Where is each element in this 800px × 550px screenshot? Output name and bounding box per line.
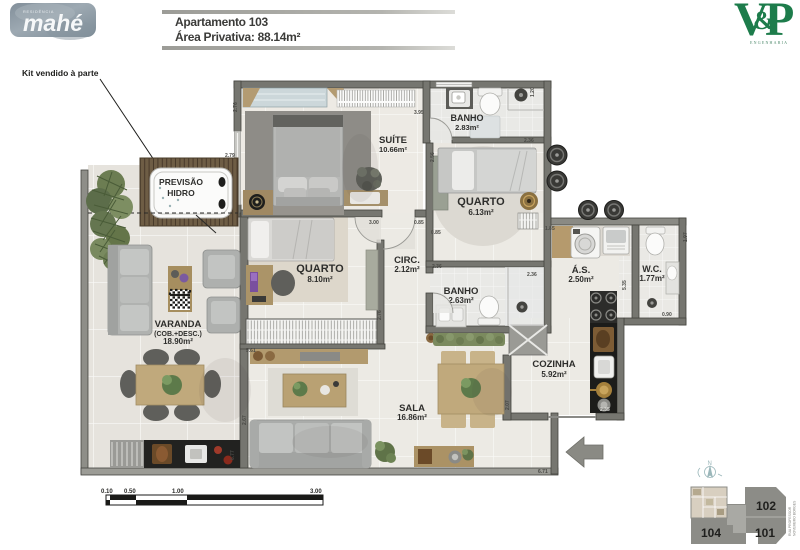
svg-text:1.85: 1.85: [545, 226, 555, 232]
svg-text:101: 101: [755, 526, 775, 540]
svg-text:2.36: 2.36: [527, 272, 537, 278]
svg-text:NOVEMBRO BORGES: NOVEMBRO BORGES: [793, 500, 797, 536]
svg-text:2.56: 2.56: [430, 152, 436, 162]
svg-text:2.67: 2.67: [242, 415, 248, 425]
svg-text:VARANDA: VARANDA: [155, 319, 202, 330]
svg-text:2.36: 2.36: [432, 264, 442, 270]
svg-text:RUA PROFESSOR: RUA PROFESSOR: [788, 506, 792, 536]
svg-text:2.79: 2.79: [225, 153, 235, 159]
svg-text:Área Privativa: 88.14m²: Área Privativa: 88.14m²: [175, 29, 300, 44]
svg-text:5.61: 5.61: [246, 348, 256, 354]
svg-text:HIDRO: HIDRO: [167, 188, 195, 198]
svg-text:16.86m²: 16.86m²: [397, 413, 427, 422]
svg-text:18.90m²: 18.90m²: [163, 337, 193, 346]
svg-text:8.10m²: 8.10m²: [307, 275, 333, 284]
svg-text:1.00: 1.00: [172, 489, 184, 495]
svg-text:3.95: 3.95: [414, 110, 424, 116]
svg-text:ENGENHARIA: ENGENHARIA: [750, 40, 788, 45]
svg-text:2.12m²: 2.12m²: [394, 265, 420, 274]
svg-text:6.13m²: 6.13m²: [468, 208, 494, 217]
svg-text:W.C.: W.C.: [642, 264, 662, 274]
svg-text:1.97: 1.97: [683, 232, 689, 242]
svg-text:10.66m²: 10.66m²: [379, 145, 407, 154]
svg-text:BANHO: BANHO: [451, 113, 484, 123]
svg-text:1.20: 1.20: [530, 87, 536, 97]
svg-text:Kit vendido à parte: Kit vendido à parte: [22, 68, 99, 78]
svg-text:1.77m²: 1.77m²: [639, 274, 665, 283]
svg-text:QUARTO: QUARTO: [457, 196, 505, 208]
svg-text:0.90: 0.90: [662, 312, 672, 318]
svg-text:2.35: 2.35: [600, 407, 610, 413]
svg-text:3.00: 3.00: [310, 489, 322, 495]
svg-text:6.77: 6.77: [230, 450, 236, 460]
svg-text:2.50m²: 2.50m²: [568, 275, 594, 284]
svg-text:5.92m²: 5.92m²: [541, 370, 567, 379]
svg-text:5.35: 5.35: [622, 280, 628, 290]
svg-text:102: 102: [756, 499, 776, 513]
svg-text:COZINHA: COZINHA: [532, 359, 575, 370]
svg-text:2.63m²: 2.63m²: [448, 296, 474, 305]
svg-text:104: 104: [701, 526, 721, 540]
svg-text:2.36: 2.36: [524, 138, 534, 144]
svg-text:QUARTO: QUARTO: [296, 263, 344, 275]
svg-text:2.76: 2.76: [233, 102, 239, 112]
svg-text:0.85: 0.85: [414, 220, 424, 226]
svg-text:Apartamento 103: Apartamento 103: [175, 15, 268, 29]
svg-text:mahé: mahé: [23, 10, 83, 36]
svg-text:PREVISÃO: PREVISÃO: [159, 177, 203, 187]
svg-text:0.10: 0.10: [101, 489, 113, 495]
svg-text:2.07: 2.07: [505, 400, 511, 410]
svg-text:0.50: 0.50: [124, 489, 136, 495]
svg-text:2.76: 2.76: [377, 310, 383, 320]
svg-text:6.71: 6.71: [538, 469, 548, 475]
svg-text:2.83m²: 2.83m²: [455, 123, 479, 132]
svg-text:3.00: 3.00: [369, 220, 379, 226]
svg-text:&: &: [753, 6, 775, 35]
svg-text:0.85: 0.85: [431, 230, 441, 236]
